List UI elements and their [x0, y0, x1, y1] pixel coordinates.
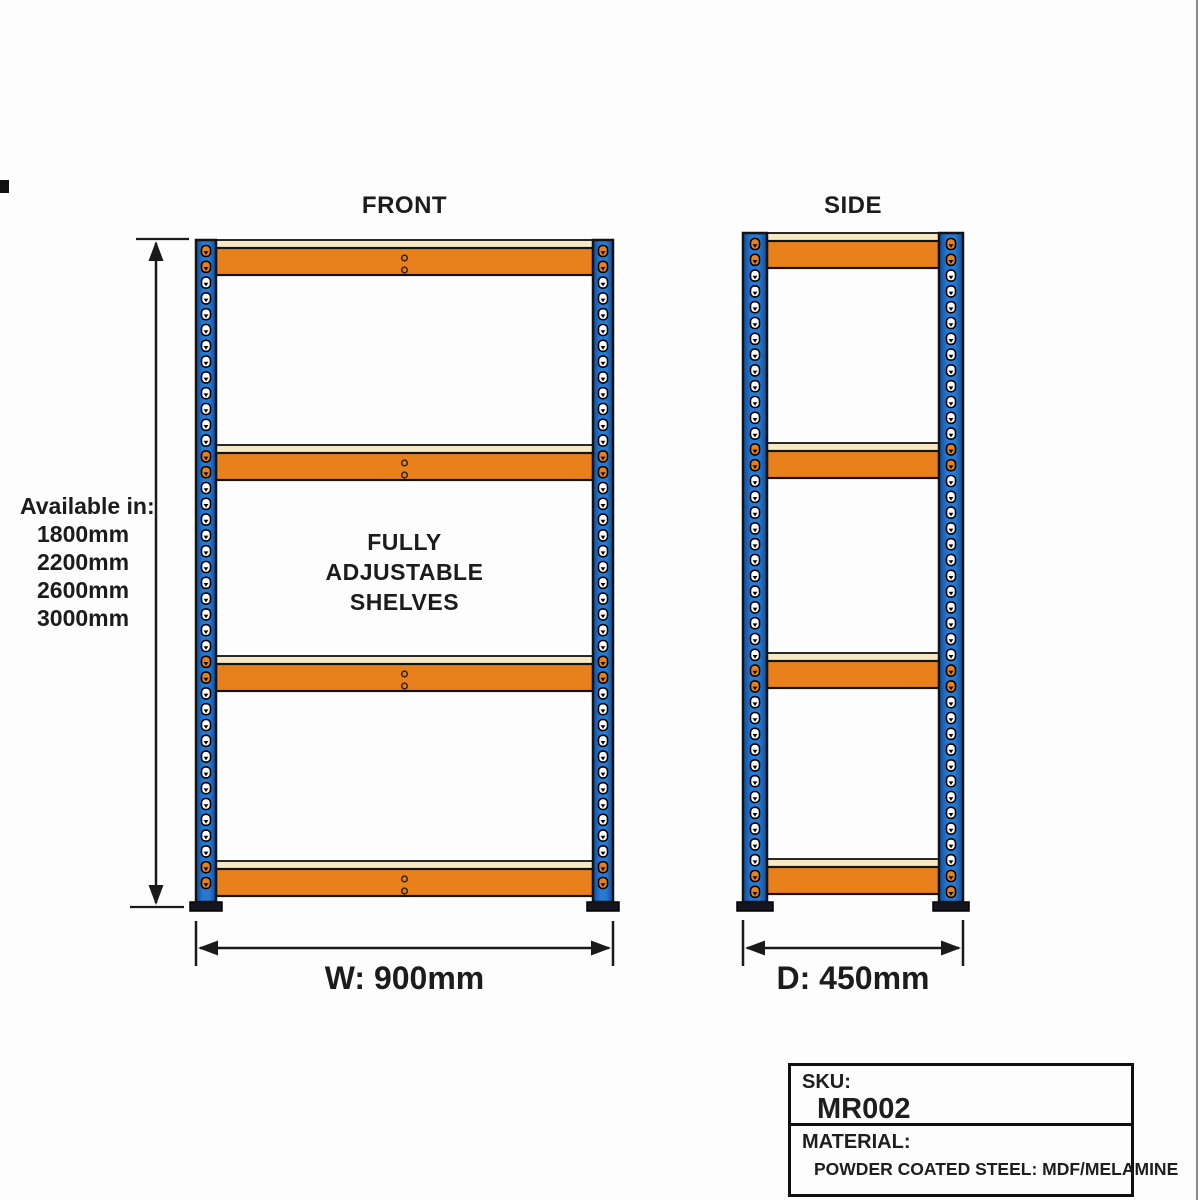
- upright-keyhole: [947, 476, 956, 487]
- upright-foot-plate: [190, 902, 222, 911]
- sku-value: MR002: [817, 1093, 1120, 1125]
- upright-keyhole: [202, 862, 211, 873]
- upright-keyhole: [202, 656, 211, 667]
- upright-keyhole: [599, 293, 608, 304]
- upright-keyhole: [202, 372, 211, 383]
- available-height-option: 1800mm: [37, 520, 155, 548]
- upright-keyhole: [202, 846, 211, 857]
- upright-keyhole: [751, 555, 760, 566]
- upright-keyhole: [202, 830, 211, 841]
- adjustable-shelves-note: FULLY ADJUSTABLE SHELVES: [216, 527, 593, 617]
- upright-keyhole: [599, 514, 608, 525]
- upright-foot-plate: [933, 902, 969, 911]
- upright-keyhole: [751, 886, 760, 897]
- shelf-deck-edge: [216, 445, 593, 453]
- upright-keyhole: [947, 318, 956, 329]
- shelf-deck-edge: [767, 233, 939, 241]
- upright-keyhole: [599, 830, 608, 841]
- upright-keyhole: [947, 397, 956, 408]
- upright-keyhole: [599, 435, 608, 446]
- upright-keyhole: [751, 697, 760, 708]
- upright-keyhole: [751, 239, 760, 250]
- upright-keyhole: [202, 325, 211, 336]
- upright-keyhole: [202, 751, 211, 762]
- upright-keyhole: [599, 372, 608, 383]
- upright-keyhole: [947, 286, 956, 297]
- upright-keyhole: [202, 546, 211, 557]
- upright-keyhole: [202, 340, 211, 351]
- available-heights-note: Available in: 1800mm 2200mm 2600mm 3000m…: [20, 492, 155, 632]
- upright-foot-plate: [737, 902, 773, 911]
- upright-keyhole: [599, 751, 608, 762]
- material-label: MATERIAL:: [802, 1131, 1120, 1153]
- upright-keyhole: [202, 878, 211, 889]
- upright-keyhole: [947, 586, 956, 597]
- upright-keyhole: [202, 735, 211, 746]
- upright-keyhole: [202, 593, 211, 604]
- upright-keyhole: [947, 871, 956, 882]
- upright-keyhole: [751, 713, 760, 724]
- upright-keyhole: [599, 325, 608, 336]
- upright-keyhole: [947, 491, 956, 502]
- adjustable-note-line: SHELVES: [216, 587, 593, 617]
- upright-keyhole: [599, 577, 608, 588]
- scan-artifact-mark: [0, 180, 9, 193]
- upright-keyhole: [202, 783, 211, 794]
- upright-keyhole: [751, 570, 760, 581]
- upright-keyhole: [202, 625, 211, 636]
- upright-keyhole: [751, 539, 760, 550]
- upright-keyhole: [947, 760, 956, 771]
- upright-keyhole: [202, 577, 211, 588]
- upright-keyhole: [751, 728, 760, 739]
- upright-keyhole: [947, 697, 956, 708]
- upright-keyhole: [947, 302, 956, 313]
- upright-keyhole: [599, 340, 608, 351]
- upright-keyhole: [599, 720, 608, 731]
- upright-keyhole: [947, 665, 956, 676]
- upright-keyhole: [202, 704, 211, 715]
- adjustable-note-line: ADJUSTABLE: [216, 557, 593, 587]
- available-height-option: 2200mm: [37, 548, 155, 576]
- upright-keyhole: [751, 744, 760, 755]
- upright-keyhole: [947, 602, 956, 613]
- upright-keyhole: [202, 293, 211, 304]
- title-block-sku-section: SKU: MR002: [791, 1066, 1131, 1126]
- upright-keyhole: [751, 491, 760, 502]
- upright-keyhole: [947, 792, 956, 803]
- upright-keyhole: [202, 767, 211, 778]
- upright-keyhole: [202, 672, 211, 683]
- upright-keyhole: [751, 397, 760, 408]
- title-block-material-section: MATERIAL: POWDER COATED STEEL: MDF/MELAM…: [791, 1126, 1131, 1180]
- upright-keyhole: [751, 476, 760, 487]
- sku-label: SKU:: [802, 1071, 1120, 1093]
- shelf-beam: [767, 241, 939, 268]
- side-view-title: SIDE: [743, 192, 963, 220]
- upright-keyhole: [202, 498, 211, 509]
- upright-keyhole: [947, 618, 956, 629]
- material-value: POWDER COATED STEEL: MDF/MELAMINE: [814, 1159, 1120, 1180]
- upright-keyhole: [202, 404, 211, 415]
- shelf-beam: [767, 661, 939, 688]
- shelf-deck-edge: [767, 443, 939, 451]
- upright-keyhole: [947, 681, 956, 692]
- upright-keyhole: [751, 855, 760, 866]
- upright-keyhole: [202, 435, 211, 446]
- upright-keyhole: [202, 530, 211, 541]
- upright-keyhole: [947, 839, 956, 850]
- upright-keyhole: [202, 688, 211, 699]
- upright-keyhole: [751, 428, 760, 439]
- upright-keyhole: [599, 451, 608, 462]
- upright-keyhole: [202, 467, 211, 478]
- upright-keyhole: [751, 349, 760, 360]
- upright-keyhole: [751, 318, 760, 329]
- beam-rivet: [402, 671, 408, 677]
- upright-keyhole: [947, 570, 956, 581]
- upright-keyhole: [751, 286, 760, 297]
- upright-keyhole: [751, 412, 760, 423]
- beam-rivet: [402, 888, 408, 894]
- upright-keyhole: [947, 412, 956, 423]
- upright-keyhole: [599, 767, 608, 778]
- upright-keyhole: [751, 602, 760, 613]
- upright-keyhole: [599, 467, 608, 478]
- upright-keyhole: [947, 713, 956, 724]
- upright-keyhole: [751, 507, 760, 518]
- upright-keyhole: [599, 814, 608, 825]
- upright-keyhole: [202, 277, 211, 288]
- shelving-diagram-svg: [0, 0, 1200, 1200]
- beam-rivet: [402, 460, 408, 466]
- upright-keyhole: [947, 381, 956, 392]
- upright-keyhole: [599, 672, 608, 683]
- upright-keyhole: [599, 246, 608, 257]
- upright-keyhole: [599, 625, 608, 636]
- upright-keyhole: [751, 460, 760, 471]
- shelf-beam: [767, 867, 939, 894]
- upright-keyhole: [202, 246, 211, 257]
- upright-keyhole: [599, 356, 608, 367]
- rack-side-view: [737, 233, 969, 911]
- upright-keyhole: [947, 744, 956, 755]
- upright-keyhole: [599, 277, 608, 288]
- upright-keyhole: [202, 309, 211, 320]
- upright-keyhole: [947, 886, 956, 897]
- shelf-deck-edge: [216, 656, 593, 664]
- upright-keyhole: [599, 388, 608, 399]
- upright-keyhole: [202, 261, 211, 272]
- upright-keyhole: [202, 388, 211, 399]
- upright-keyhole: [202, 799, 211, 810]
- upright-keyhole: [751, 618, 760, 629]
- upright-keyhole: [599, 593, 608, 604]
- upright-keyhole: [947, 776, 956, 787]
- upright-keyhole: [751, 634, 760, 645]
- upright-keyhole: [947, 444, 956, 455]
- upright-keyhole: [599, 483, 608, 494]
- upright-keyhole: [599, 862, 608, 873]
- upright-keyhole: [599, 498, 608, 509]
- upright-keyhole: [599, 878, 608, 889]
- upright-keyhole: [947, 855, 956, 866]
- upright-keyhole: [599, 309, 608, 320]
- upright-keyhole: [599, 783, 608, 794]
- upright-keyhole: [599, 656, 608, 667]
- beam-rivet: [402, 876, 408, 882]
- upright-keyhole: [202, 451, 211, 462]
- upright-keyhole: [947, 270, 956, 281]
- upright-keyhole: [947, 254, 956, 265]
- upright-keyhole: [202, 514, 211, 525]
- upright-keyhole: [599, 261, 608, 272]
- available-height-option: 3000mm: [37, 604, 155, 632]
- upright-keyhole: [599, 704, 608, 715]
- upright-keyhole: [947, 807, 956, 818]
- page-edge-line: [1196, 0, 1198, 1200]
- beam-rivet: [402, 683, 408, 689]
- upright-keyhole: [751, 649, 760, 660]
- front-view-title: FRONT: [196, 192, 613, 220]
- upright-keyhole: [202, 483, 211, 494]
- upright-keyhole: [751, 776, 760, 787]
- available-height-option: 2600mm: [37, 576, 155, 604]
- upright-keyhole: [599, 419, 608, 430]
- upright-keyhole: [599, 735, 608, 746]
- upright-keyhole: [751, 792, 760, 803]
- upright-keyhole: [202, 609, 211, 620]
- upright-keyhole: [599, 641, 608, 652]
- upright-keyhole: [947, 365, 956, 376]
- upright-keyhole: [751, 302, 760, 313]
- beam-rivet: [402, 267, 408, 273]
- upright-keyhole: [751, 254, 760, 265]
- upright-keyhole: [751, 839, 760, 850]
- upright-keyhole: [751, 665, 760, 676]
- upright-keyhole: [751, 365, 760, 376]
- upright-keyhole: [947, 728, 956, 739]
- upright-keyhole: [599, 846, 608, 857]
- upright-keyhole: [599, 404, 608, 415]
- adjustable-note-line: FULLY: [216, 527, 593, 557]
- upright-keyhole: [947, 823, 956, 834]
- upright-keyhole: [751, 333, 760, 344]
- beam-rivet: [402, 472, 408, 478]
- upright-keyhole: [947, 239, 956, 250]
- available-heights-title: Available in:: [20, 492, 155, 520]
- upright-keyhole: [202, 641, 211, 652]
- upright-keyhole: [599, 562, 608, 573]
- upright-keyhole: [202, 419, 211, 430]
- upright-keyhole: [202, 720, 211, 731]
- upright-keyhole: [947, 428, 956, 439]
- upright-keyhole: [947, 649, 956, 660]
- upright-keyhole: [599, 530, 608, 541]
- depth-dimension-label: D: 450mm: [743, 960, 963, 997]
- upright-keyhole: [751, 823, 760, 834]
- upright-foot-plate: [587, 902, 619, 911]
- upright-keyhole: [599, 799, 608, 810]
- upright-keyhole: [751, 760, 760, 771]
- upright-keyhole: [947, 523, 956, 534]
- shelving-technical-diagram: FRONT SIDE Available in: 1800mm 2200mm 2…: [0, 0, 1200, 1200]
- upright-keyhole: [947, 460, 956, 471]
- upright-keyhole: [947, 539, 956, 550]
- upright-keyhole: [947, 634, 956, 645]
- shelf-deck-edge: [767, 653, 939, 661]
- upright-keyhole: [202, 356, 211, 367]
- shelf-deck-edge: [767, 859, 939, 867]
- upright-keyhole: [751, 523, 760, 534]
- shelf-deck-edge: [216, 240, 593, 248]
- beam-rivet: [402, 255, 408, 261]
- upright-keyhole: [947, 349, 956, 360]
- upright-keyhole: [751, 270, 760, 281]
- title-block: SKU: MR002 MATERIAL: POWDER COATED STEEL…: [788, 1063, 1134, 1197]
- upright-keyhole: [947, 333, 956, 344]
- upright-keyhole: [751, 681, 760, 692]
- shelf-beam: [767, 451, 939, 478]
- upright-keyhole: [599, 609, 608, 620]
- upright-keyhole: [202, 562, 211, 573]
- upright-keyhole: [751, 871, 760, 882]
- upright-keyhole: [751, 381, 760, 392]
- upright-keyhole: [599, 546, 608, 557]
- upright-keyhole: [202, 814, 211, 825]
- upright-keyhole: [751, 586, 760, 597]
- shelf-deck-edge: [216, 861, 593, 869]
- upright-keyhole: [751, 444, 760, 455]
- width-dimension-label: W: 900mm: [196, 960, 613, 997]
- upright-keyhole: [947, 507, 956, 518]
- upright-keyhole: [751, 807, 760, 818]
- upright-keyhole: [599, 688, 608, 699]
- upright-keyhole: [947, 555, 956, 566]
